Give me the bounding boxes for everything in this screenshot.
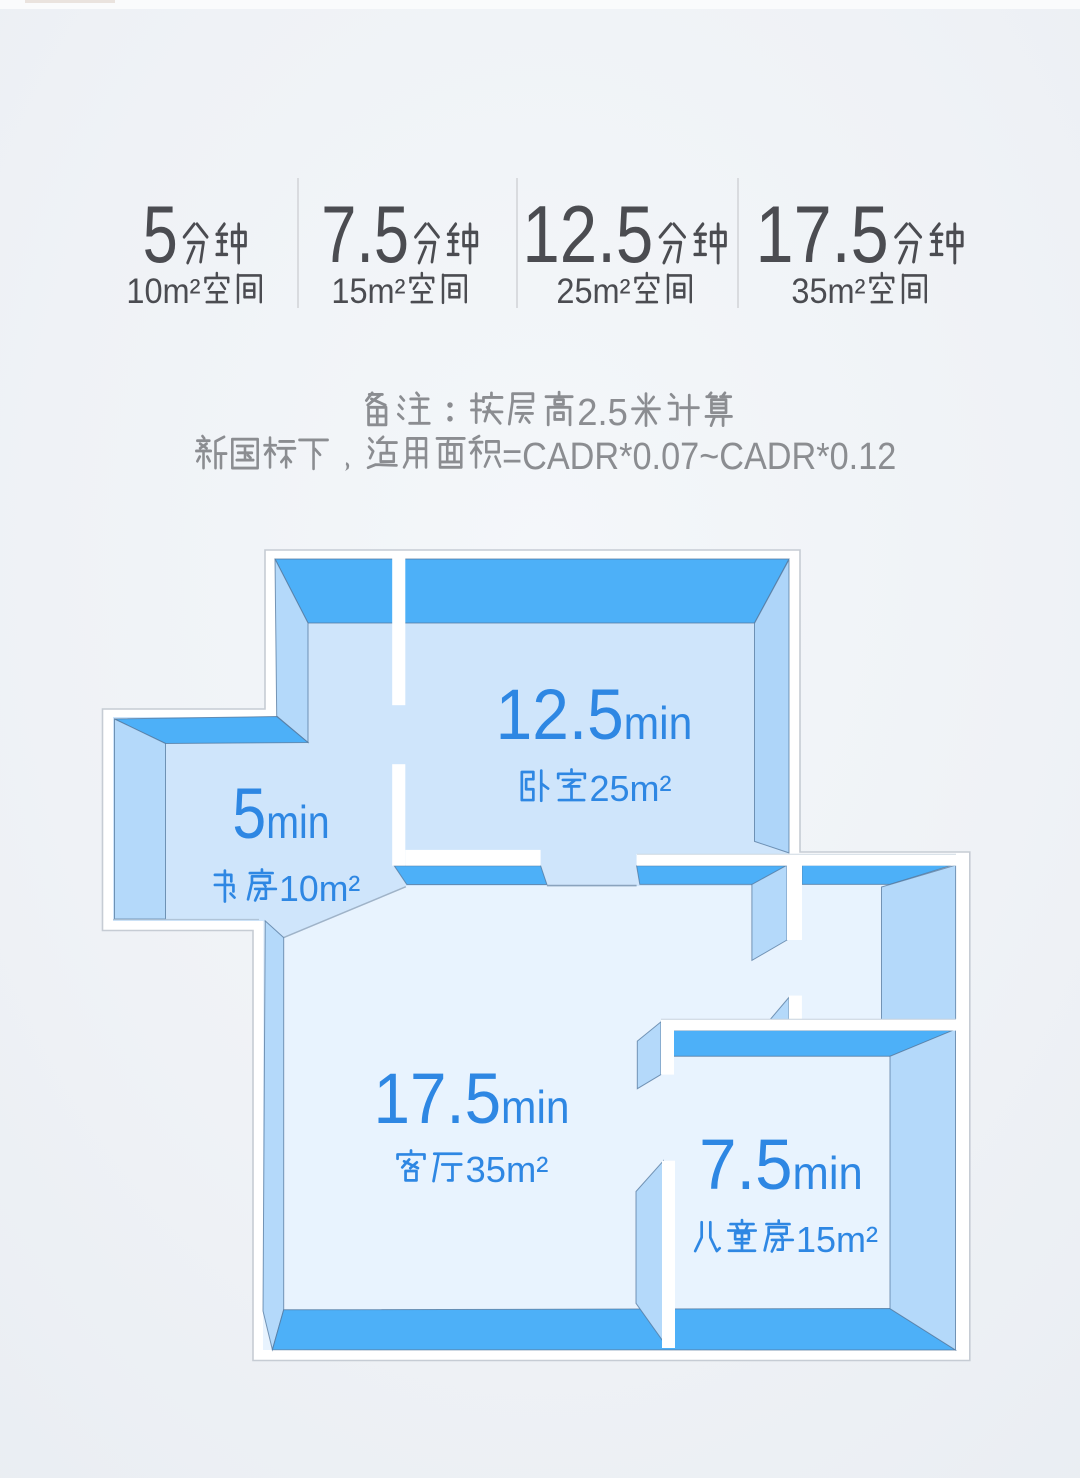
svg-text:10m²: 10m² [279, 869, 360, 909]
svg-text:25m²: 25m² [556, 272, 630, 311]
svg-text:12.5: 12.5 [522, 189, 653, 279]
svg-text:=CADR*0.07~CADR*0.12: =CADR*0.07~CADR*0.12 [502, 434, 896, 477]
svg-text:25m²: 25m² [590, 768, 672, 809]
svg-text:35m²: 35m² [791, 272, 865, 311]
svg-text:17.5: 17.5 [373, 1060, 501, 1139]
svg-text:35m²: 35m² [466, 1149, 549, 1190]
svg-text:7.5: 7.5 [321, 190, 409, 280]
svg-text:2.5: 2.5 [577, 390, 628, 433]
svg-text:15m²: 15m² [331, 272, 405, 311]
svg-text:5: 5 [143, 190, 178, 280]
svg-text:12.5: 12.5 [496, 675, 624, 755]
svg-text:min: min [793, 1148, 863, 1199]
svg-text:15m²: 15m² [796, 1219, 878, 1260]
svg-text:min: min [266, 797, 329, 849]
svg-text:17.5: 17.5 [756, 189, 889, 280]
svg-text:min: min [501, 1082, 569, 1133]
svg-text:min: min [624, 699, 693, 750]
svg-text:5: 5 [232, 775, 266, 855]
svg-text:7.5: 7.5 [699, 1124, 792, 1204]
svg-text:10m²: 10m² [126, 272, 200, 311]
